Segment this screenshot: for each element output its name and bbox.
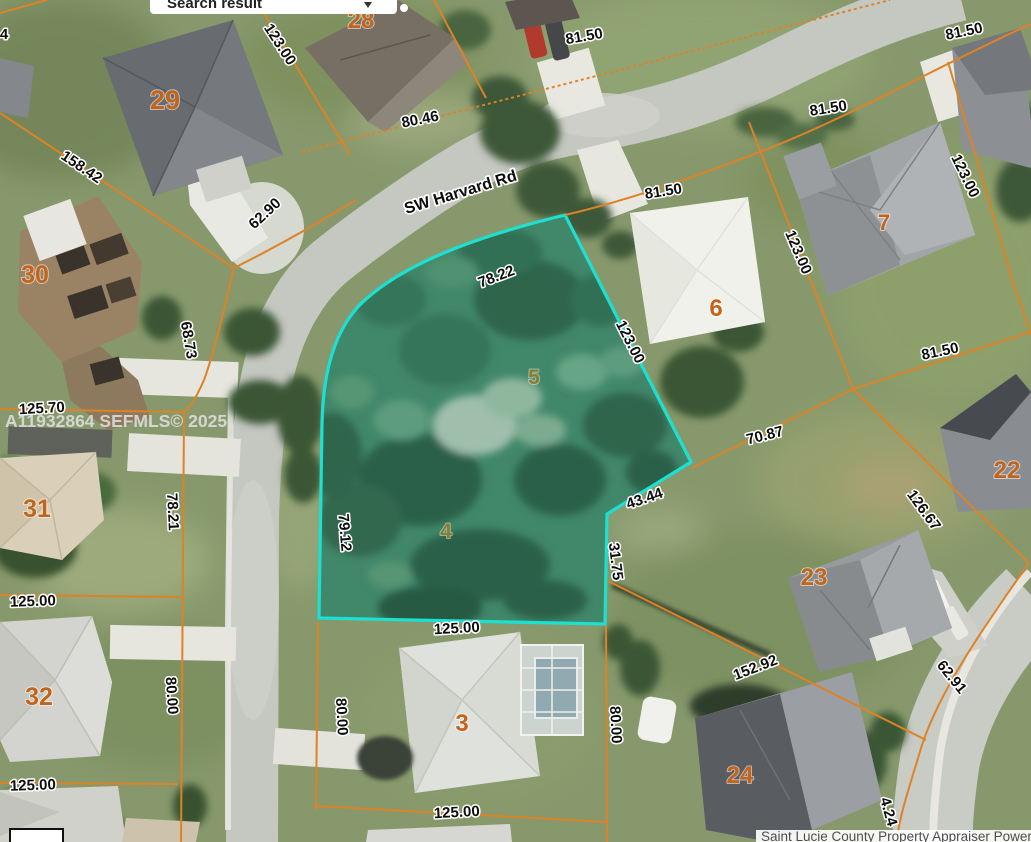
- svg-text:125.00: 125.00: [433, 619, 480, 638]
- svg-text:4: 4: [440, 520, 452, 543]
- svg-text:7: 7: [878, 210, 890, 235]
- svg-text:29: 29: [150, 85, 180, 115]
- svg-text:78.21: 78.21: [163, 493, 182, 531]
- svg-text:23: 23: [801, 564, 828, 591]
- svg-text:24: 24: [727, 762, 754, 789]
- svg-text:125.00: 125.00: [10, 592, 56, 611]
- svg-text:31: 31: [23, 495, 51, 523]
- svg-text:3: 3: [455, 710, 468, 737]
- svg-text:80.00: 80.00: [606, 706, 625, 744]
- svg-text:80.00: 80.00: [162, 676, 182, 715]
- svg-text:80.00: 80.00: [332, 698, 351, 736]
- svg-text:32: 32: [25, 683, 53, 711]
- svg-text:A11932864 SEFMLS© 2025: A11932864 SEFMLS© 2025: [5, 411, 227, 431]
- svg-text:22: 22: [994, 457, 1021, 484]
- svg-text:125.00: 125.00: [433, 803, 480, 822]
- svg-text:30: 30: [21, 261, 49, 289]
- svg-text:6: 6: [709, 295, 722, 322]
- svg-text:Saint Lucie County Property Ap: Saint Lucie County Property Appraiser Po…: [761, 829, 1031, 842]
- svg-text:4: 4: [0, 26, 9, 43]
- svg-text:Search result: Search result: [167, 0, 262, 12]
- svg-text:79.12: 79.12: [334, 513, 354, 552]
- svg-text:5: 5: [528, 366, 540, 389]
- svg-text:125.00: 125.00: [10, 776, 56, 795]
